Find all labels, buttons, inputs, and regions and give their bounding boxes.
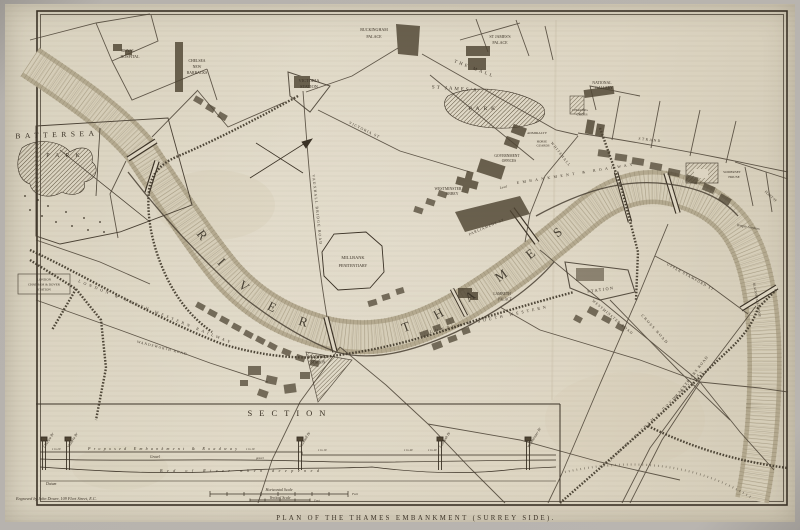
label-millbank-2: PENITENTIARY [339,263,368,268]
label-national-gallery-2: GALLERY [595,86,613,90]
waterloo-station-block [565,262,635,300]
millbank-penitentiary-octagon [322,232,384,290]
label-vauxhall-station: VAUXHALL [308,355,328,359]
label-waterloo-station: STATION [587,285,615,294]
section-slope-2: 1 in 10 [246,447,255,451]
section-feet-label: Feet [351,492,359,496]
label-royal-hospital-2: HOSPITAL [120,54,140,59]
section-horizontal-scale-label: Horizontal Scale [265,487,293,492]
label-westminster-road: WESTMINSTER ROAD [591,299,634,336]
label-lambeth-palace: LAMBETH [493,292,511,296]
label-chelsea-barracks: CHELSEA [188,59,205,63]
label-lcd-station-3: STATION [37,288,51,292]
label-vauxhall-station-2: STATION [311,361,326,365]
section-slope-3: 1 in 10 [318,448,327,452]
label-charing-cross: CHARING [572,108,588,112]
label-westminster-abbey: WESTMINSTER [435,187,462,191]
label-somerset-house-2: HOUSE [728,175,739,179]
label-buckingham-palace: BUCKINGHAM [360,27,388,32]
section-vertical-scale-label: Vertical Scale [270,496,291,500]
label-lambeth-palace-2: PALACE [498,298,512,302]
section-title: SECTION [248,408,333,418]
label-chelsea-barracks-2: NEW [193,65,202,69]
buckingham-palace-block [396,24,420,56]
label-horse-guards-2: GUARDS [536,144,549,148]
label-lcd-station: LONDON [37,278,52,282]
chelsea-barracks-block [175,42,183,92]
label-battersea-park: PARK [46,153,85,159]
section-feet-label-2: Feet [313,499,320,503]
label-westminster-abbey-2: ABBEY [446,192,459,196]
label-national-gallery: NATIONAL [592,81,612,85]
label-charing-cross-2: CROSS [576,113,587,117]
label-battersea: BATTERSEA [15,129,98,141]
section-datum-label: Datum [45,482,57,486]
label-somerset-house: SOMERSET [723,170,742,174]
label-whitehall: WHITEHALL [550,141,572,167]
compass-arrow-icon [250,139,312,178]
label-strand: STRAND [638,137,662,144]
label-st-james-palace-2: PALACE [492,40,508,45]
vauxhall-gardens-block [306,352,352,402]
section-slope-4: 1 in 40 [404,448,413,452]
tree-lined-road [565,464,752,498]
label-fleet-street: FLEET ST [764,190,778,204]
engraver-credit: Engraved by John Dower, 109 Fleet Street… [15,496,97,502]
label-victoria-station-2: STATION [300,84,319,89]
section-slope-1: 1 in 20 [52,447,61,451]
section-gravel-label: Gravel [150,455,160,459]
label-government-offices: GOVERNMENT [494,154,520,158]
label-cross-road: CROSS ROAD [640,314,669,345]
label-victoria-station: VICTORIA [299,78,321,83]
label-wandsworth-road: WANDSWORTH ROAD [137,340,188,356]
horse-guards-block [504,136,520,149]
label-government-offices-2: OFFICES [502,159,516,163]
label-st-james-palace: ST JAMES'S [489,34,510,39]
label-buckingham-palace-2: PALACE [366,34,382,39]
label-upper-stamford-street: UPPER STAMFORD ST [666,262,715,291]
label-millbank: MILLBANK [341,255,365,260]
label-royal-hospital: ROYAL [121,48,135,53]
label-st-james-park-2: PARK [469,106,499,112]
label-lcd-station-2: CHATHAM & DOVER [28,283,61,287]
section-embankment-label: Proposed Embankment & Roadway [87,446,238,451]
label-embankment-level: Level [498,185,507,191]
section-slope-5: 1 in 40 [428,448,437,452]
label-admiralty: ADMIRALTY [527,131,548,135]
label-victoria-street: VICTORIA ST [348,121,381,140]
map-engraving: RIVER THAMES BATTERSEA PARK ROYAL HOSPIT… [0,0,800,530]
section-gravel-small-label: gravel [256,456,264,460]
plate-caption: PLAN OF THE THAMES EMBANKMENT (SURREY SI… [276,515,556,522]
scanned-map-page: RIVER THAMES BATTERSEA PARK ROYAL HOSPIT… [0,0,800,530]
label-chelsea-barracks-3: BARRACKS [187,71,207,75]
st-james-palace-block [466,46,490,56]
label-st-james-park: ST JAMES'S [432,85,479,93]
